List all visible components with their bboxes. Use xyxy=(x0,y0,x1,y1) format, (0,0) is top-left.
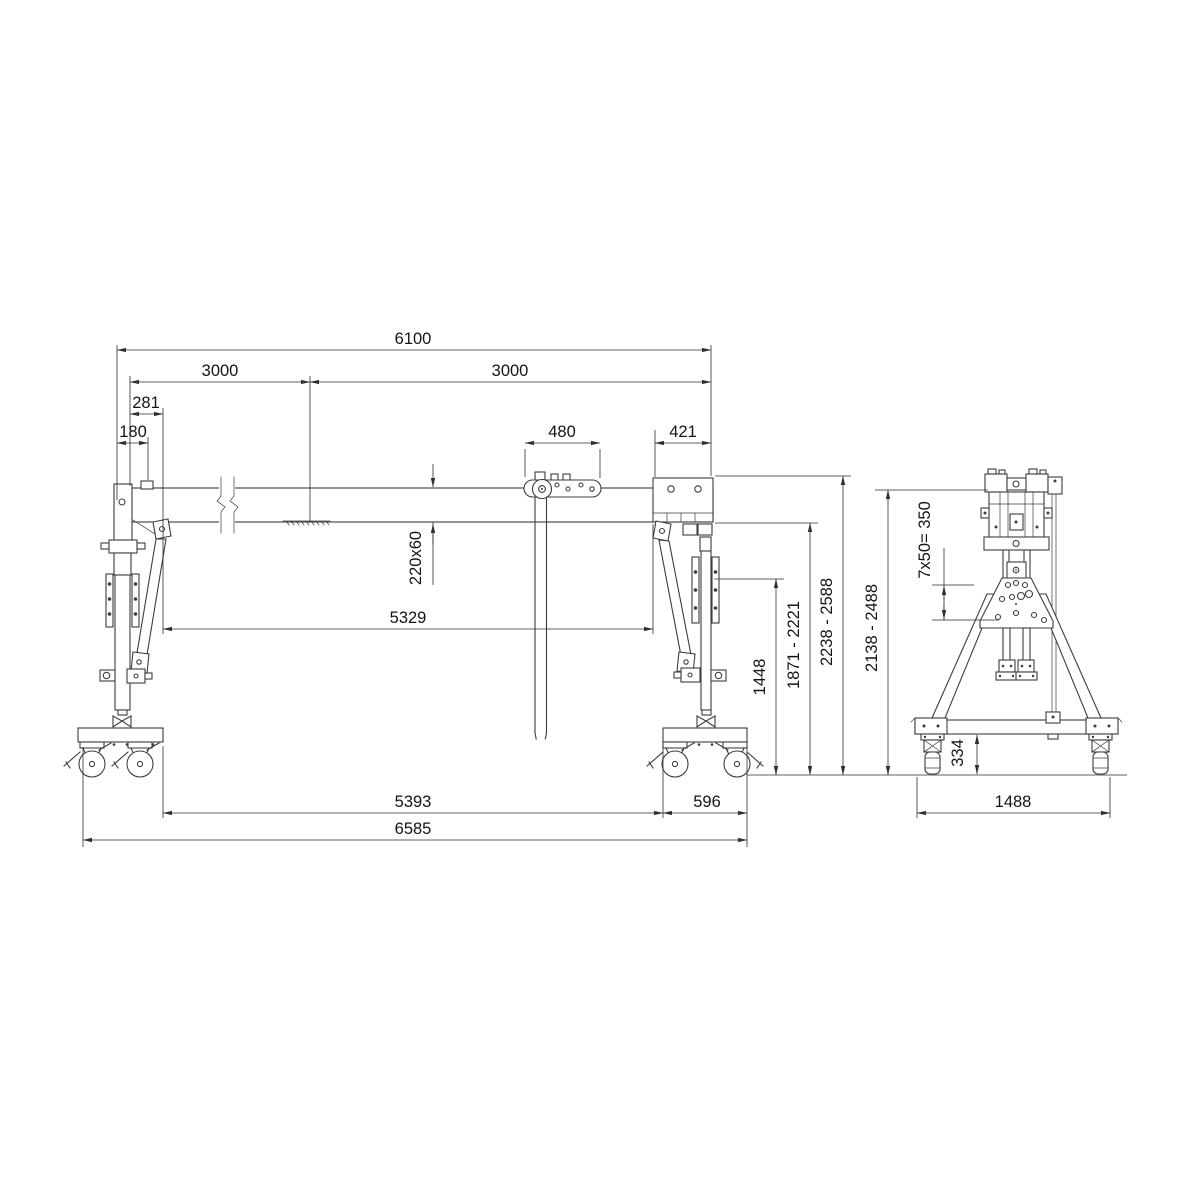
dim-bogie-length: 596 xyxy=(693,793,721,811)
gusset-plate xyxy=(980,578,1053,628)
main-beam xyxy=(115,488,713,525)
dimension-labels: 6100 3000 3000 281 180 480 421 220x60 53… xyxy=(119,330,1031,838)
caster-wheel xyxy=(716,742,763,777)
side-column-mid xyxy=(984,537,1049,578)
dim-buffer-offset: 180 xyxy=(119,423,147,441)
dim-clamp-height: 1448 xyxy=(751,659,769,696)
dim-wheel-span-inner: 5393 xyxy=(395,793,432,811)
caster-wheel xyxy=(112,742,159,777)
right-leg-assembly xyxy=(653,478,726,727)
dim-rail-half-right: 3000 xyxy=(492,362,529,380)
hoist-chain-line xyxy=(1052,495,1056,714)
caster-wheel xyxy=(647,742,694,777)
dim-base-width: 1488 xyxy=(995,793,1032,811)
left-base-bogie xyxy=(64,728,163,777)
dim-head-length: 421 xyxy=(669,423,697,441)
gantry-crane-drawing: 6100 3000 3000 281 180 480 421 220x60 53… xyxy=(0,0,1200,1200)
stabilizer-feet xyxy=(996,628,1037,680)
side-caster-right xyxy=(1089,734,1112,774)
dim-rail-total: 6100 xyxy=(395,330,432,348)
side-column-upper xyxy=(981,492,1052,538)
dim-clear-width: 5329 xyxy=(390,609,427,627)
beam-break-symbol xyxy=(217,477,238,534)
dim-underbeam-range: 2238 - 2588 xyxy=(818,578,836,666)
dim-caster-height: 334 xyxy=(949,739,967,767)
side-view xyxy=(911,469,1122,774)
dimension-lines xyxy=(83,345,1127,847)
dim-end-offset: 281 xyxy=(132,394,160,412)
side-caster-left xyxy=(921,734,944,774)
dim-rail-half-left: 3000 xyxy=(202,362,239,380)
dim-overall-height-range: 2138 - 2488 xyxy=(863,584,881,672)
dim-overall-length: 6585 xyxy=(395,820,432,838)
caster-wheel xyxy=(64,742,111,777)
trolley-end-view xyxy=(985,469,1062,494)
dim-hook-range: 1871 - 2221 xyxy=(785,601,803,689)
technical-drawing-sheet: 6100 3000 3000 281 180 480 421 220x60 53… xyxy=(0,0,1200,1200)
dim-beam-profile: 220x60 xyxy=(407,531,425,585)
dim-bolt-pattern: 7x50= 350 xyxy=(916,501,934,579)
right-base-bogie xyxy=(647,728,763,777)
dim-trolley-length: 480 xyxy=(548,423,576,441)
